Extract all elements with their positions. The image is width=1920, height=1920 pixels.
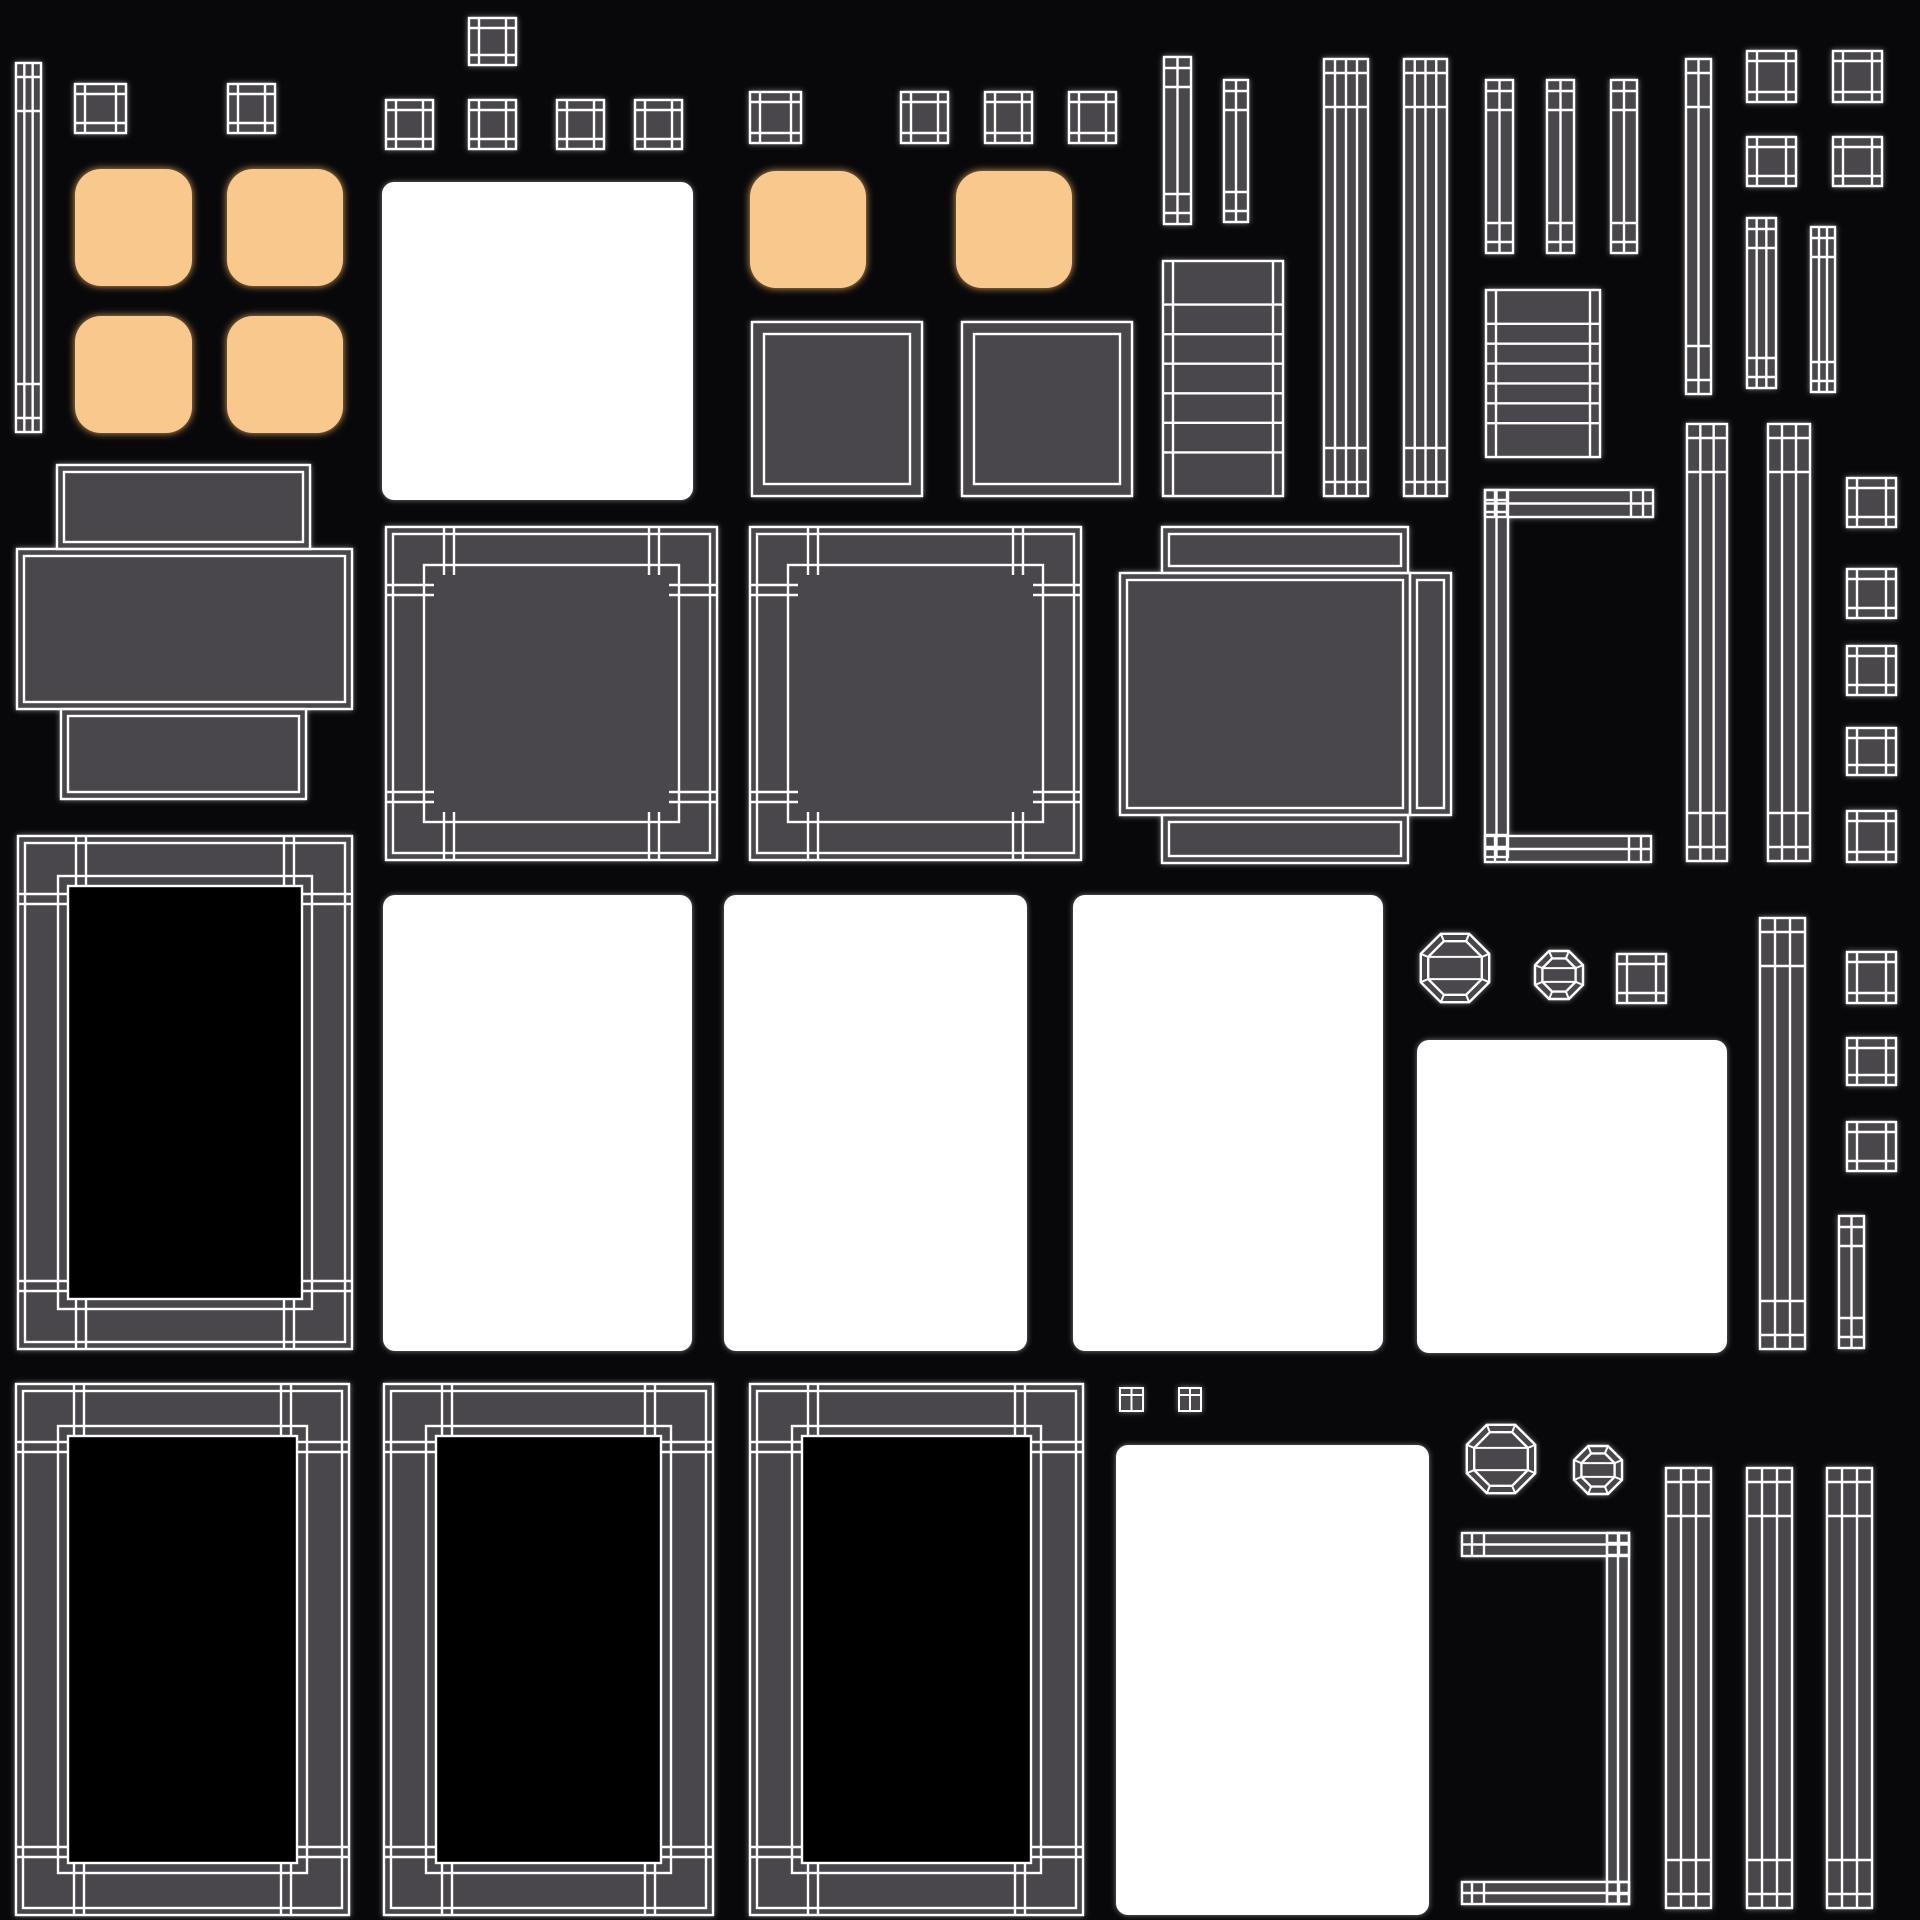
island-capped-bar-8 [1827,1468,1872,1908]
island-thin-bar-2 [1547,80,1574,253]
island-stub-bar-1 [1839,1216,1864,1348]
island-window-sq-8 [750,92,801,143]
island-window-sq-5 [469,100,516,149]
island-window-sq-20 [1847,811,1896,862]
island-octagon-small-2 [1574,1446,1622,1494]
island-capped-bar-topleft [16,63,41,432]
island-cushion-orange-3 [75,316,192,433]
island-window-sq-12 [1747,51,1796,102]
island-white-patch-mid-3 [1073,895,1383,1351]
island-capped-bar-7 [1747,1468,1792,1908]
island-octagon-big-2 [1467,1425,1535,1493]
island-picture-frame-3 [384,1384,713,1915]
island-capped-bar-3 [1224,80,1248,222]
island-octagon-small-1 [1535,951,1583,999]
island-bordered-square-1 [386,527,717,860]
island-tall-bar-1 [1686,59,1711,394]
island-wide-bar-2 [1404,59,1447,496]
island-picture-frame-4 [750,1384,1083,1915]
island-window-sq-2 [228,84,275,133]
island-window-sq-13 [1833,51,1882,102]
uv-texture-atlas [0,0,1920,1920]
island-window-sq-18 [1847,646,1896,695]
island-capped-bar-2 [1164,57,1191,224]
island-ladder-2 [1486,290,1600,457]
island-cushion-orange-5 [750,171,866,288]
island-window-sq-19 [1847,728,1896,775]
island-window-sq-21 [1847,952,1896,1003]
island-white-patch-mid-2 [724,895,1027,1351]
island-cushion-orange-4 [227,316,343,433]
island-window-sq-3 [469,18,516,65]
island-window-sq-23 [1847,1122,1896,1171]
island-bracket-1 [1485,490,1653,862]
island-window-sq-1 [75,84,126,133]
island-wide-bar-1 [1324,59,1368,496]
island-white-patch-mid-1 [383,895,692,1351]
island-bordered-square-2 [750,527,1081,860]
island-bracket-2 [1462,1533,1629,1904]
island-white-patch-mid-4 [1417,1040,1727,1353]
island-window-sq-6 [557,100,604,149]
island-window-sq-4 [386,100,433,149]
island-picture-frame-1 [18,836,352,1349]
island-capped-bar-6 [1666,1468,1711,1908]
island-white-patch-top [382,182,693,500]
island-plain-square-2 [962,322,1132,496]
island-window-sq-11 [1069,92,1116,143]
island-window-sq-24 [1617,954,1666,1003]
island-striped-bar-1 [1747,218,1776,388]
island-tiny-sq-1 [1120,1388,1143,1411]
island-capped-bar-4 [1687,424,1727,861]
island-window-sq-17 [1847,569,1896,618]
island-capped-bar-5 [1768,424,1810,861]
island-cushion-orange-2 [227,169,343,286]
island-thin-bar-1 [1486,80,1513,253]
island-white-patch-bottom [1116,1445,1429,1915]
island-window-sq-16 [1847,478,1896,527]
island-cross-panel-2 [1120,527,1451,863]
island-window-sq-7 [635,100,682,149]
island-striped-bar-3 [1760,918,1805,1349]
island-thin-bar-3 [1611,80,1637,253]
island-cushion-orange-1 [75,169,192,286]
uv-atlas-canvas [0,0,1920,1920]
island-window-sq-9 [901,92,948,143]
island-cross-panel-1 [17,465,352,799]
island-striped-bar-2 [1811,227,1835,392]
island-ladder-1 [1163,261,1283,496]
island-tiny-sq-2 [1179,1388,1201,1411]
island-window-sq-22 [1847,1038,1896,1085]
island-window-sq-14 [1747,137,1796,186]
island-picture-frame-2 [16,1384,349,1915]
island-window-sq-15 [1833,137,1882,186]
island-octagon-big-1 [1421,934,1489,1002]
island-window-sq-10 [985,92,1032,143]
island-cushion-orange-6 [956,171,1072,288]
island-plain-square-1 [752,322,922,496]
